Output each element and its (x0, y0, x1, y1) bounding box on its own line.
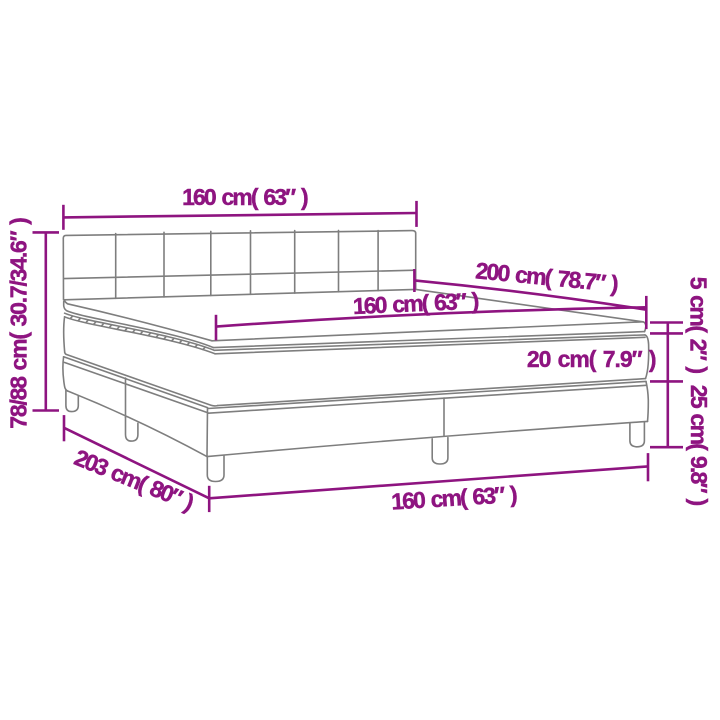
svg-text:5 cm( 2″ ): 5 cm( 2″ ) (686, 277, 712, 374)
svg-text:20 cm( 7.9″ ): 20 cm( 7.9″ ) (527, 346, 656, 372)
svg-text:25 cm( 9.8″ ): 25 cm( 9.8″ ) (686, 385, 712, 506)
svg-text:78/88 cm( 30.7/34.6″ ): 78/88 cm( 30.7/34.6″ ) (6, 218, 32, 429)
svg-text:160 cm( 63″ ): 160 cm( 63″ ) (182, 184, 308, 210)
